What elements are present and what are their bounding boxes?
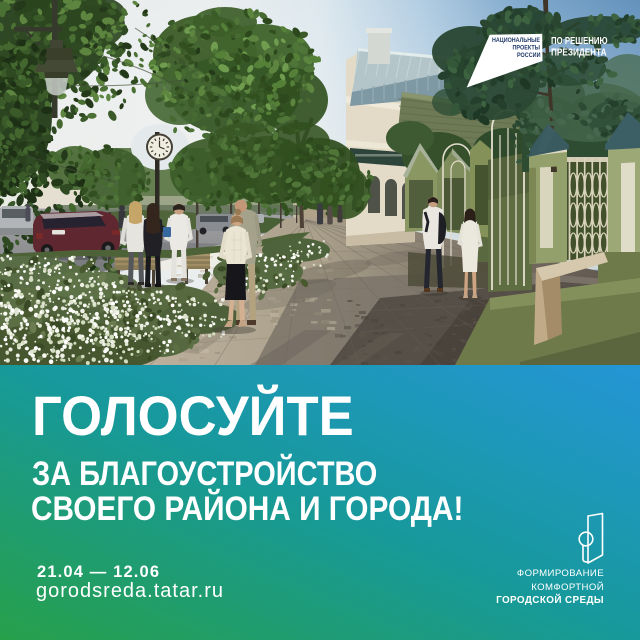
svg-text:НАЦИОНАЛЬНЫЕ: НАЦИОНАЛЬНЫЕ — [492, 37, 540, 44]
svg-text:РОССИИ: РОССИИ — [517, 52, 541, 59]
svg-text:ПРОЕКТЫ: ПРОЕКТЫ — [513, 45, 541, 52]
svg-text:ПО РЕШЕНИЮ: ПО РЕШЕНИЮ — [551, 36, 608, 47]
svg-text:ПРЕЗИДЕНТА: ПРЕЗИДЕНТА — [551, 48, 607, 59]
